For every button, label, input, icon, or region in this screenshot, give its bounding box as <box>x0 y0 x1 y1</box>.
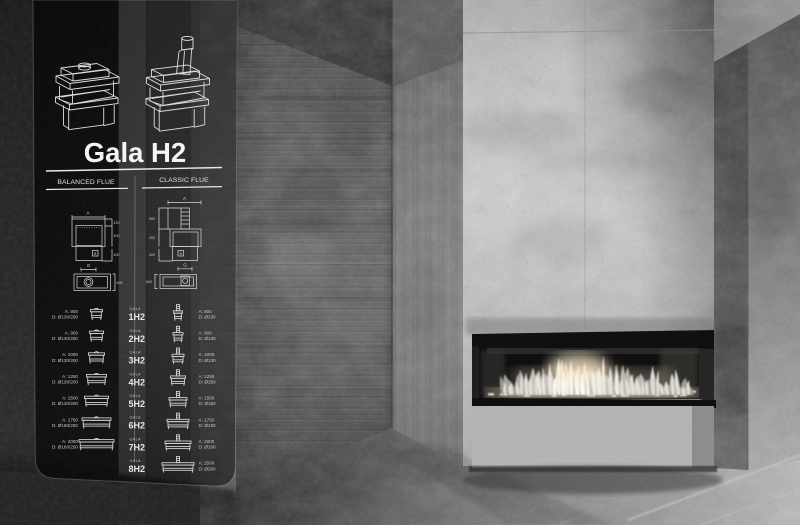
svg-text:D: Ø160/250: D: Ø160/250 <box>52 445 78 450</box>
svg-text:7H2: 7H2 <box>129 442 146 452</box>
svg-text:A: 2500: A: 2500 <box>199 461 215 466</box>
svg-text:A: 1750: A: 1750 <box>62 417 78 422</box>
svg-text:D: Ø150: D: Ø150 <box>199 380 217 385</box>
svg-text:A: 1000: A: 1000 <box>199 352 215 357</box>
svg-text:D: Ø130/200: D: Ø130/200 <box>52 380 78 385</box>
svg-text:495: 495 <box>117 281 123 285</box>
svg-text:GALA: GALA <box>130 372 141 376</box>
svg-text:400: 400 <box>149 253 155 257</box>
svg-text:400: 400 <box>149 236 155 240</box>
svg-text:A: 1250: A: 1250 <box>62 374 78 379</box>
svg-text:GALA: GALA <box>130 351 141 355</box>
svg-text:3H2: 3H2 <box>129 356 146 366</box>
svg-text:1H2: 1H2 <box>129 312 146 322</box>
svg-text:600: 600 <box>146 280 152 284</box>
svg-text:150: 150 <box>114 221 120 225</box>
svg-text:A: 900: A: 900 <box>65 331 79 336</box>
svg-text:GALA: GALA <box>130 437 141 441</box>
svg-text:GALA: GALA <box>130 307 141 311</box>
svg-text:D: Ø200: D: Ø200 <box>199 466 217 471</box>
svg-text:A: 1000: A: 1000 <box>62 352 78 357</box>
svg-text:D: Ø130/200: D: Ø130/200 <box>52 401 78 406</box>
svg-text:A: 800: A: 800 <box>65 309 79 314</box>
svg-text:Gala H2: Gala H2 <box>84 137 186 168</box>
svg-text:4H2: 4H2 <box>129 377 146 387</box>
svg-text:D: Ø160: D: Ø160 <box>199 445 217 450</box>
svg-text:CLASSIC FLUE: CLASSIC FLUE <box>159 177 209 184</box>
svg-text:A: 1500: A: 1500 <box>62 396 78 401</box>
svg-text:D: Ø130/200: D: Ø130/200 <box>52 336 78 341</box>
svg-text:2H2: 2H2 <box>129 334 146 344</box>
svg-text:500: 500 <box>149 217 155 221</box>
svg-text:A: 1750: A: 1750 <box>199 417 215 422</box>
svg-text:GALA: GALA <box>130 416 141 420</box>
svg-text:400: 400 <box>114 253 120 257</box>
svg-text:A: 1250: A: 1250 <box>199 374 215 379</box>
svg-text:A: 800: A: 800 <box>199 309 213 314</box>
svg-text:D: Ø130: D: Ø130 <box>199 336 217 341</box>
svg-text:A: 2000: A: 2000 <box>199 439 215 444</box>
svg-text:A: 900: A: 900 <box>199 331 213 336</box>
svg-text:D: Ø130/200: D: Ø130/200 <box>52 358 78 363</box>
svg-text:D: Ø130: D: Ø130 <box>199 358 217 363</box>
svg-text:A: 1500: A: 1500 <box>199 396 215 401</box>
svg-text:D: Ø130/200: D: Ø130/200 <box>52 314 78 319</box>
svg-text:A: 2000: A: 2000 <box>62 439 78 444</box>
svg-text:GALA: GALA <box>130 394 141 398</box>
svg-text:G: G <box>183 262 187 267</box>
svg-text:D: Ø160/250: D: Ø160/250 <box>52 423 78 428</box>
svg-text:BALANCED FLUE: BALANCED FLUE <box>57 179 115 186</box>
svg-text:GALA: GALA <box>130 459 141 463</box>
svg-text:5H2: 5H2 <box>129 399 146 409</box>
svg-text:G: G <box>87 263 91 268</box>
svg-text:8H2: 8H2 <box>129 464 146 474</box>
svg-text:6H2: 6H2 <box>129 421 146 431</box>
svg-text:400: 400 <box>114 234 120 238</box>
svg-text:D: Ø160: D: Ø160 <box>199 423 217 428</box>
svg-text:D: Ø130: D: Ø130 <box>199 314 217 319</box>
svg-text:GALA: GALA <box>130 329 141 333</box>
svg-text:D: Ø150: D: Ø150 <box>199 401 217 406</box>
